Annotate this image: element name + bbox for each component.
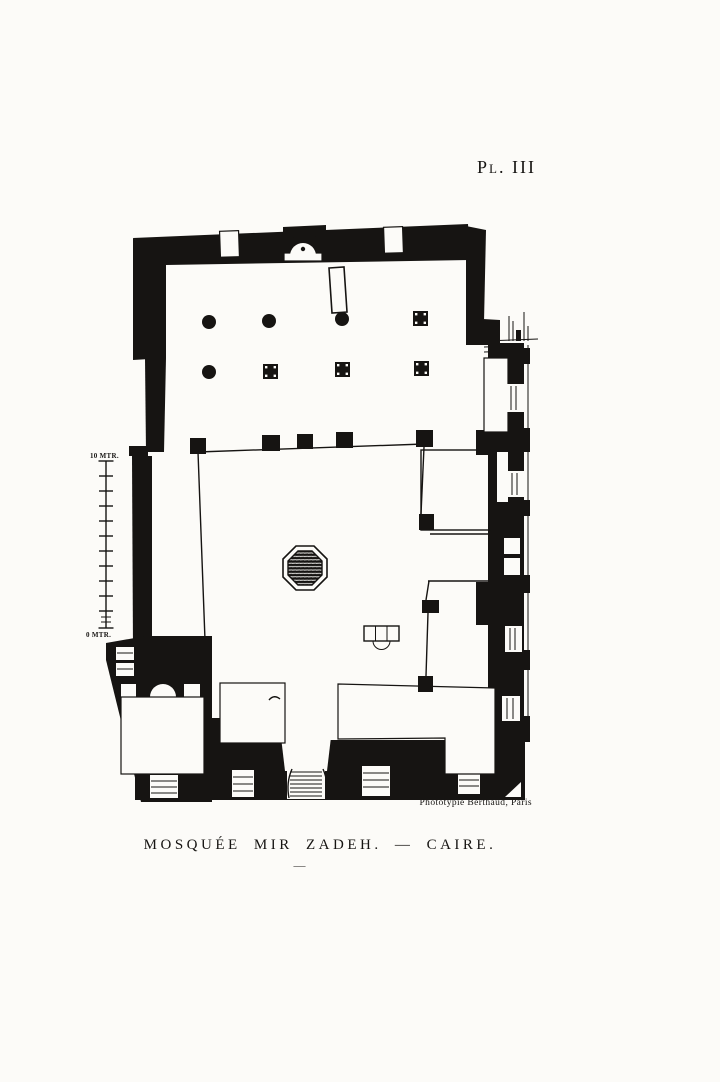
east-wall-pilaster bbox=[522, 348, 530, 364]
column bbox=[202, 315, 216, 329]
iwan-window bbox=[504, 538, 520, 554]
floor-plan-drawing: 10 MTR. 0 MTR. bbox=[0, 0, 720, 1082]
south-window bbox=[232, 770, 254, 797]
east-room bbox=[484, 358, 508, 432]
column bbox=[262, 314, 276, 328]
south-window bbox=[458, 774, 480, 794]
prayer-hall-columns bbox=[202, 311, 429, 379]
mihrab-projection bbox=[283, 225, 326, 238]
scanned-plate-page: Pl. III bbox=[0, 0, 720, 1082]
courtyard-outline bbox=[198, 444, 518, 700]
east-window bbox=[502, 696, 520, 721]
west-wall-buttress bbox=[129, 446, 148, 456]
ablution-fountain bbox=[283, 546, 327, 590]
scale-bar: 10 MTR. 0 MTR. bbox=[86, 452, 119, 639]
south-window bbox=[362, 766, 390, 796]
qibla-window bbox=[220, 231, 240, 258]
east-wall-upper bbox=[466, 226, 486, 322]
east-recess bbox=[497, 452, 508, 502]
west-wall-lower bbox=[132, 456, 152, 650]
mihrab-center-dot bbox=[301, 247, 305, 251]
entrance-vestibule bbox=[281, 737, 331, 771]
square-pier bbox=[414, 361, 429, 376]
southwest-room bbox=[220, 683, 285, 743]
scale-top-label: 10 MTR. bbox=[90, 452, 119, 460]
iwan-window bbox=[504, 558, 520, 575]
square-pier bbox=[335, 362, 350, 377]
east-wall-pilaster bbox=[524, 575, 530, 593]
east-wall-spur bbox=[476, 582, 492, 625]
west-wall-mid bbox=[145, 358, 166, 452]
square-pier bbox=[413, 311, 428, 326]
east-window bbox=[507, 471, 524, 497]
column bbox=[202, 365, 216, 379]
tomb-room bbox=[121, 697, 204, 774]
photographer-credit: Phototypie Berthaud, Paris bbox=[419, 798, 532, 808]
east-window bbox=[506, 384, 524, 412]
east-window bbox=[505, 626, 522, 652]
caption-rule: — bbox=[0, 858, 600, 873]
column bbox=[335, 312, 349, 326]
east-wall-pilaster bbox=[522, 500, 530, 516]
well-basin bbox=[364, 626, 399, 650]
scale-bottom-label: 0 MTR. bbox=[86, 631, 111, 639]
east-wall-pilaster bbox=[524, 716, 530, 742]
plate-caption: MOSQUÉE MIR ZADEH. — CAIRE. bbox=[0, 837, 640, 854]
east-wall-pilaster bbox=[522, 650, 530, 670]
east-wall-pilaster bbox=[524, 428, 530, 452]
qibla-window bbox=[384, 227, 404, 254]
minbar bbox=[329, 267, 347, 313]
square-pier bbox=[263, 364, 278, 379]
